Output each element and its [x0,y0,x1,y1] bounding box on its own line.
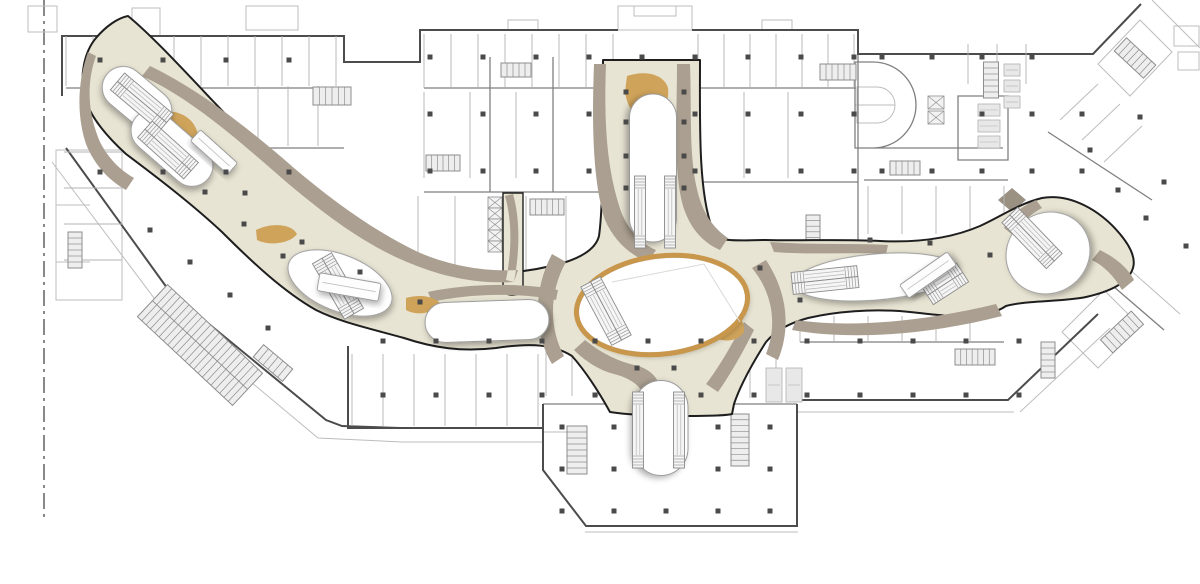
column-marker [852,112,857,117]
column-marker [224,58,229,63]
shaft-icon [928,111,944,124]
fixture-icon [978,120,1000,132]
column-marker [481,112,486,117]
column-marker [799,112,804,117]
column-marker [768,509,773,514]
column-marker [752,339,757,344]
column-marker [672,366,677,371]
stair-icon [501,63,531,77]
column-marker [1080,169,1085,174]
column-marker [768,467,773,472]
column-marker [148,228,153,233]
column-marker [612,467,617,472]
column-marker [228,293,233,298]
stair-icon [820,64,856,80]
column-marker [911,393,916,398]
column-marker [699,339,704,344]
column-marker [693,112,698,117]
floor-plan [0,0,1200,584]
column-marker [612,509,617,514]
column-marker [805,339,810,344]
stair-icon [731,414,749,466]
stair-icon [530,199,564,215]
stair-icon [1114,38,1156,78]
fixture-icon [786,368,802,402]
column-marker [805,393,810,398]
column-marker [682,186,687,191]
fixture-icon [1004,80,1020,92]
column-marker [188,260,193,265]
column-marker [534,55,539,60]
column-marker [593,339,598,344]
shaft-icon [928,96,944,109]
column-marker [768,425,773,430]
column-marker [1144,216,1149,221]
column-marker [988,253,993,258]
fixture-icon [978,136,1000,148]
column-marker [1017,339,1022,344]
column-marker [1162,180,1167,185]
escalator-icon [674,392,685,468]
column-marker [1138,115,1143,120]
column-marker [587,55,592,60]
column-marker [880,169,885,174]
column-marker [540,339,545,344]
column-marker [481,55,486,60]
stair-icon [567,426,587,474]
column-marker [540,393,545,398]
column-marker [381,339,386,344]
column-marker [799,169,804,174]
column-marker [428,112,433,117]
escalator-icon [635,176,646,248]
fixture-icon [1004,96,1020,108]
column-marker [266,326,271,331]
column-marker [560,425,565,430]
fixture-icon [766,368,782,402]
column-marker [418,300,423,305]
column-marker [1030,169,1035,174]
column-marker [682,90,687,95]
column-marker [534,112,539,117]
column-marker [434,339,439,344]
column-marker [161,58,166,63]
column-marker [930,55,935,60]
column-marker [612,425,617,430]
column-marker [852,169,857,174]
column-marker [693,169,698,174]
column-marker [716,467,721,472]
column-marker [635,366,640,371]
column-marker [560,509,565,514]
column-marker [980,169,985,174]
column-marker [980,112,985,117]
column-marker [798,298,803,303]
column-marker [682,120,687,125]
column-marker [587,112,592,117]
column-marker [624,154,629,159]
column-marker [1030,55,1035,60]
stair-icon [68,232,82,268]
column-marker [980,55,985,60]
column-marker [98,170,103,175]
column-marker [487,393,492,398]
column-marker [487,339,492,344]
column-marker [593,393,598,398]
stair-icon [955,349,995,365]
stair-icon [1101,311,1144,353]
void-center-west [424,299,549,343]
column-marker [868,238,873,243]
column-marker [1017,393,1022,398]
column-marker [224,170,229,175]
column-marker [646,339,651,344]
fixture-icon [1004,64,1020,76]
shaft-icon [488,241,502,252]
column-marker [746,112,751,117]
shaft-icon [488,208,502,219]
column-marker [1030,112,1035,117]
column-marker [624,186,629,191]
column-marker [1116,188,1121,193]
column-marker [428,169,433,174]
column-marker [752,393,757,398]
column-marker [1088,148,1093,153]
floor-plan-drawing [0,0,1200,584]
column-marker [716,425,721,430]
column-marker [300,240,305,245]
column-marker [203,190,208,195]
column-marker [243,191,248,196]
column-marker [758,266,763,271]
column-marker [911,339,916,344]
column-marker [287,58,292,63]
stair-icon [137,285,262,406]
stair-icon [313,87,351,105]
column-marker [358,270,363,275]
column-marker [799,55,804,60]
column-marker [746,55,751,60]
column-marker [1080,112,1085,117]
column-marker [534,169,539,174]
column-marker [664,509,669,514]
column-marker [1184,244,1189,249]
column-marker [481,169,486,174]
column-marker [281,254,286,259]
column-marker [434,393,439,398]
stair-icon [984,62,999,98]
column-marker [560,467,565,472]
column-marker [858,339,863,344]
column-marker [624,120,629,125]
column-marker [928,241,933,246]
void-opening [424,299,549,343]
column-marker [858,393,863,398]
column-marker [98,58,103,63]
column-marker [587,169,592,174]
column-marker [930,169,935,174]
column-marker [682,154,687,159]
column-marker [161,170,166,175]
escalator-icon [665,176,676,248]
column-marker [640,55,645,60]
column-marker [716,509,721,514]
column-marker [287,170,292,175]
column-marker [699,393,704,398]
shaft-icon [488,230,502,241]
column-marker [880,55,885,60]
column-marker [964,393,969,398]
column-marker [242,222,247,227]
column-marker [381,393,386,398]
column-marker [746,169,751,174]
shaft-icon [488,219,502,230]
column-marker [693,55,698,60]
column-marker [964,339,969,344]
escalator-icon [633,392,644,468]
stair-icon [806,215,820,243]
column-marker [428,55,433,60]
column-marker [624,90,629,95]
stair-icon [890,161,920,175]
stair-icon [1041,342,1055,378]
shaft-icon [488,197,502,208]
column-marker [852,55,857,60]
